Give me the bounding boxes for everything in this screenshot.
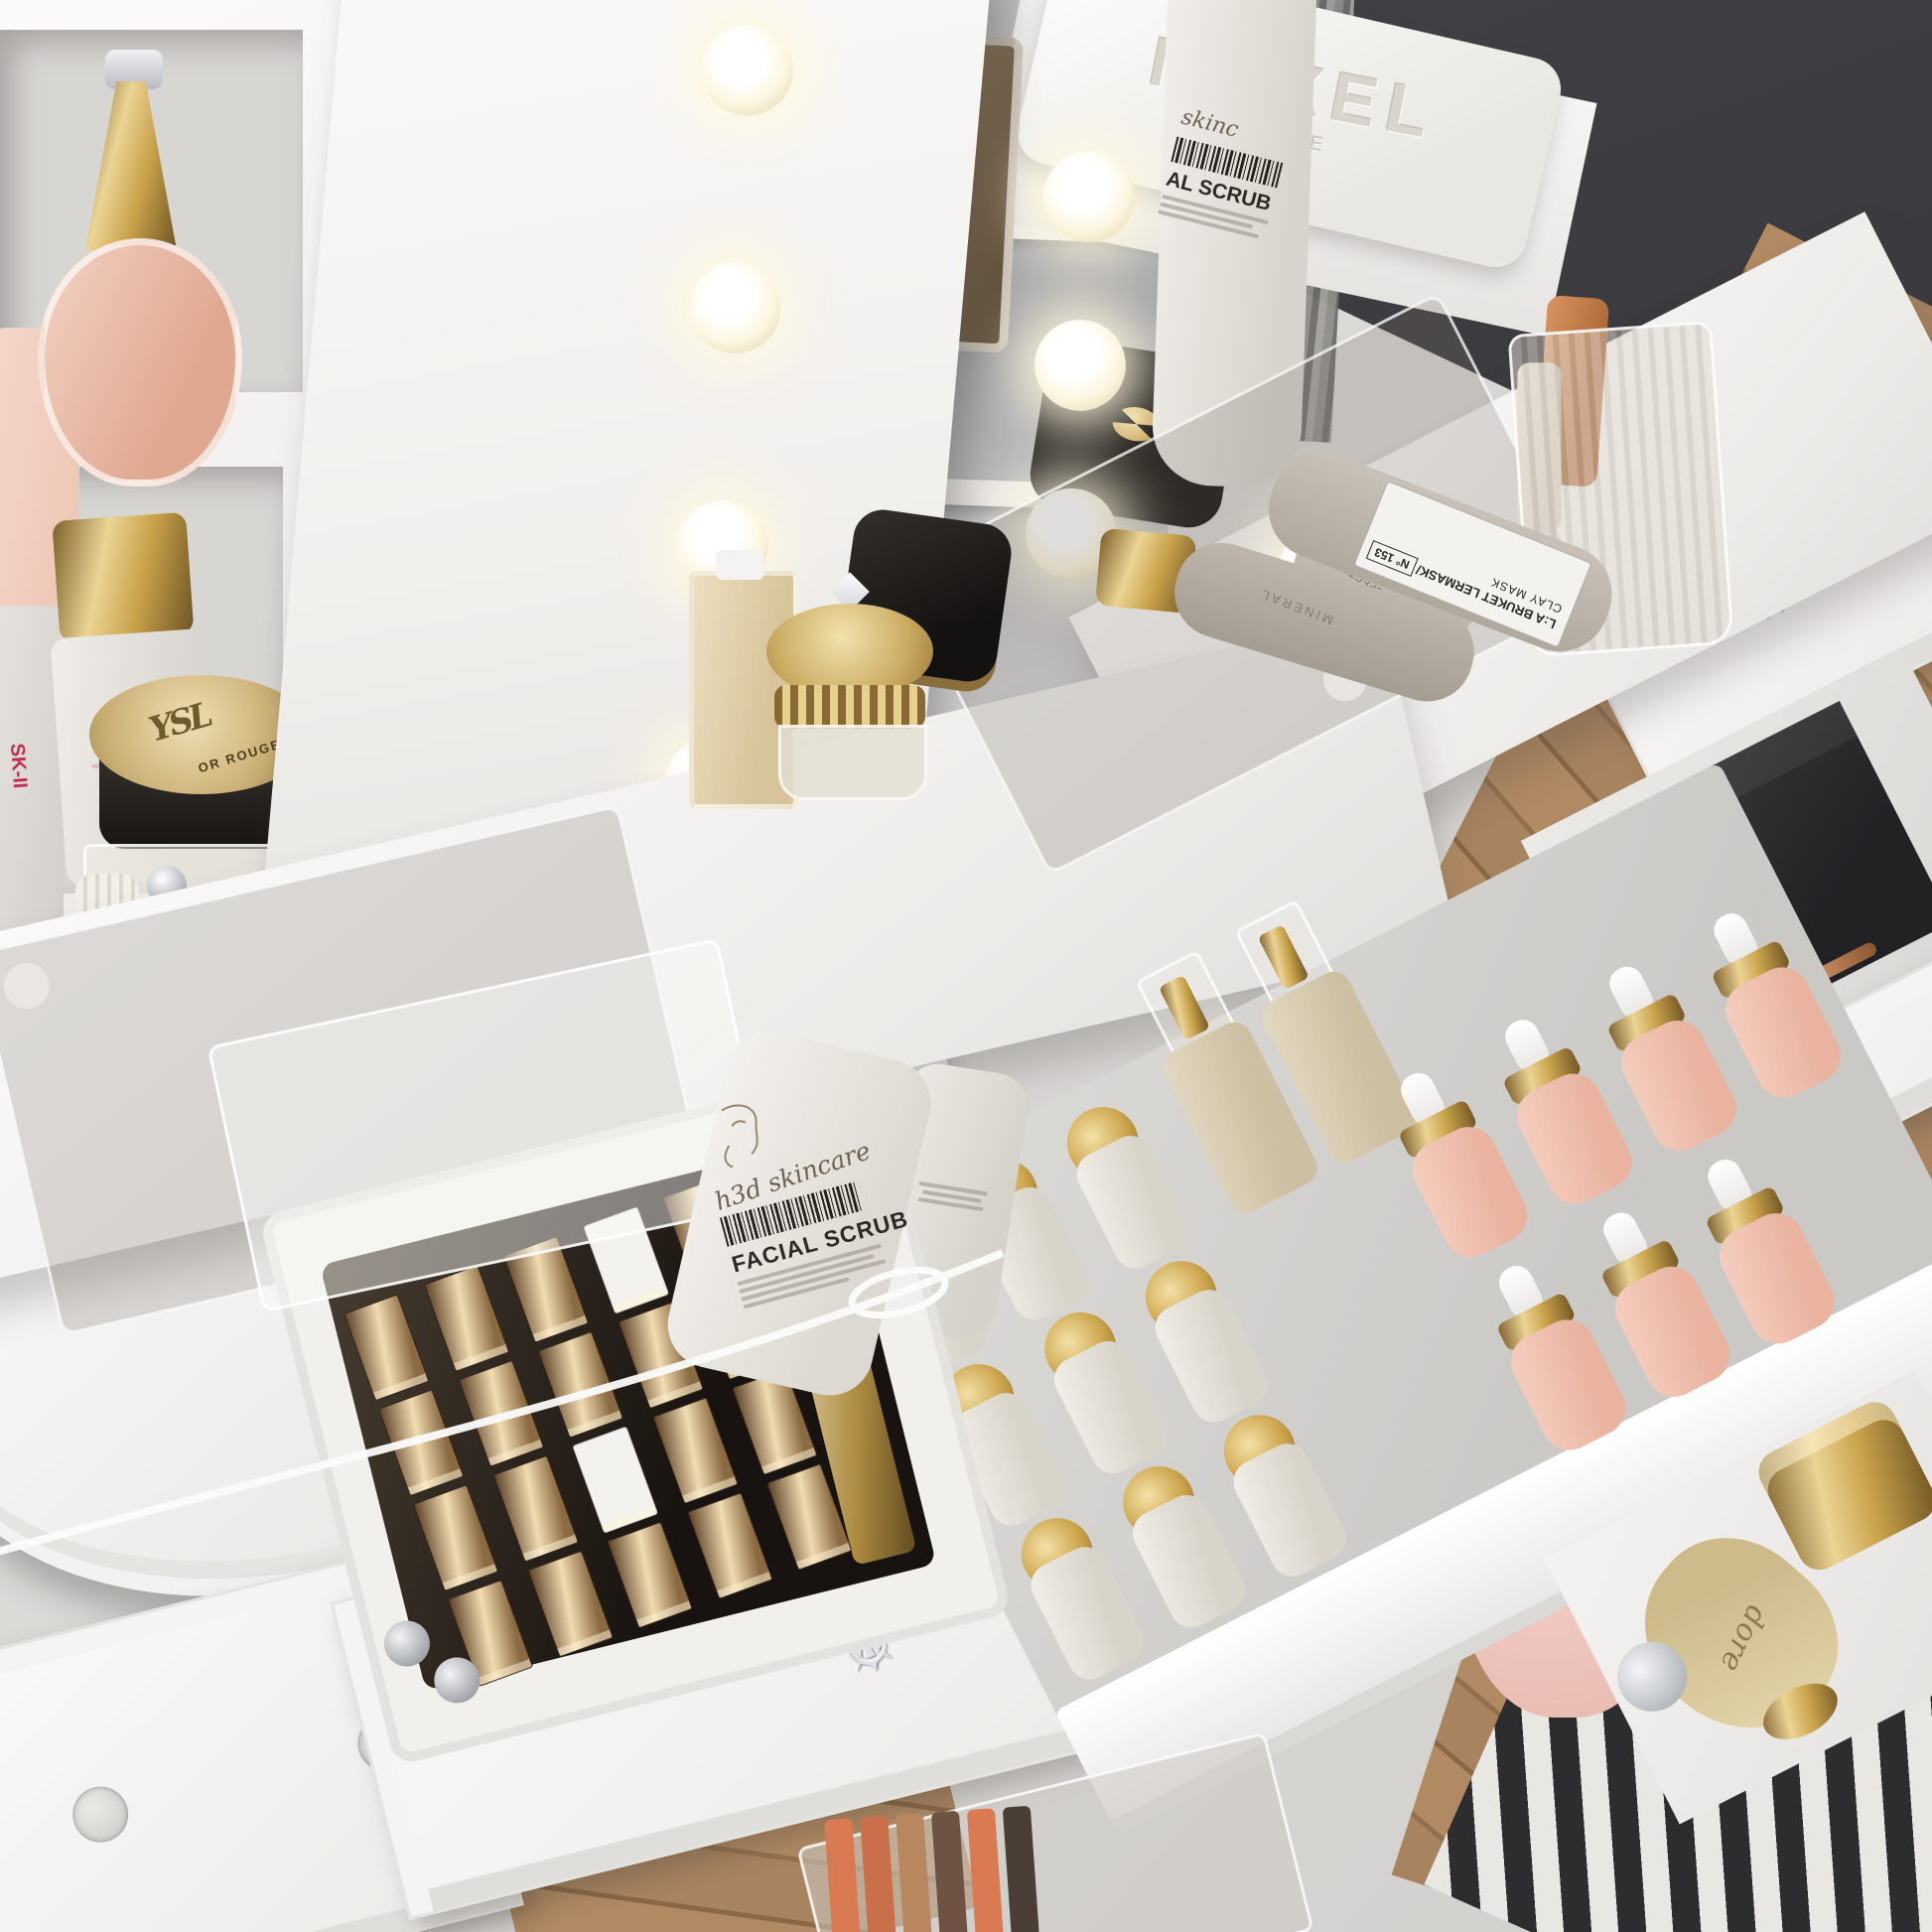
vanity-product-photo: SK-II SK-II YSL OR ROUGE YSL OR ROUGE [0, 0, 1932, 1932]
power-cable [0, 0, 1932, 1932]
